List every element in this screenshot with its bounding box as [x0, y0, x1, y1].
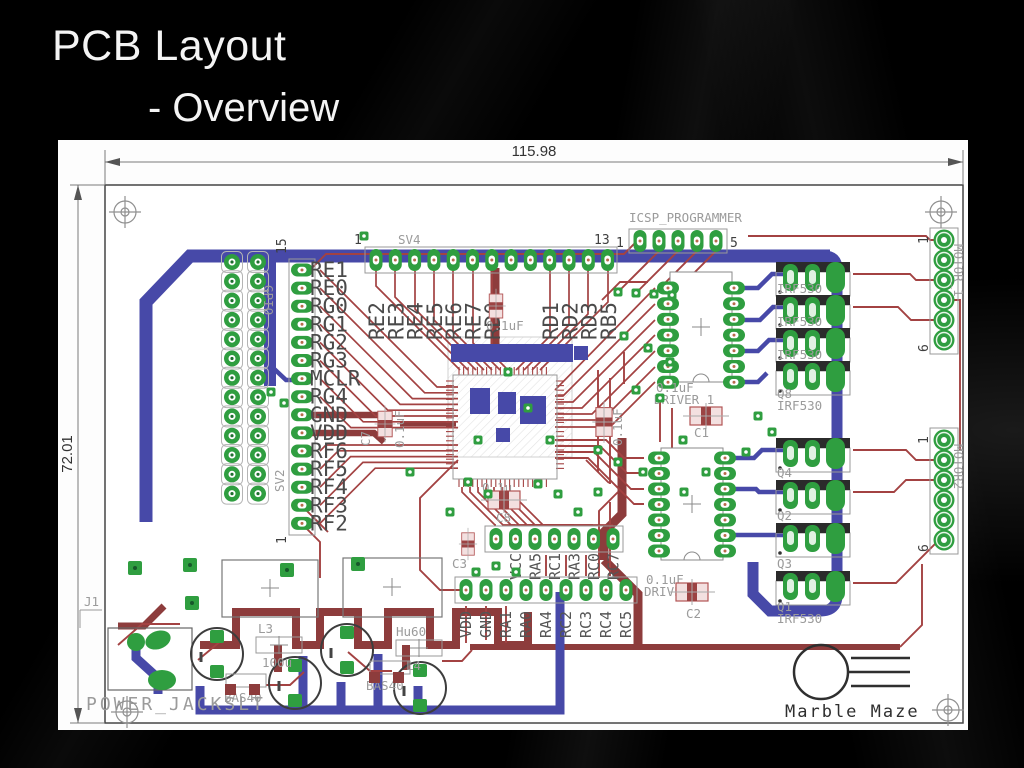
svg-text:RA0: RA0: [517, 611, 535, 638]
dimension-height-label: 72.01: [59, 435, 76, 473]
pcb-layout-image: GPIO 15 1 SV2 RE1RE0RG0RG1RG2RG3MCLRRG4G…: [58, 140, 968, 730]
slide-subtitle: - Overview: [148, 86, 339, 131]
c7-value: 0.1uF: [392, 410, 407, 448]
q4-ref: Q4: [777, 465, 792, 480]
sv4-pin-labels-left: RE2RE3RE4RE5RE6RE7RD0: [365, 302, 505, 340]
svg-text:RC5: RC5: [617, 611, 635, 638]
icsp-label: ICSP_PROGRAMMER: [629, 210, 742, 225]
motor1-pin1: 1: [917, 236, 932, 244]
q8-part: IRF530: [777, 398, 822, 413]
svg-text:RC1: RC1: [546, 553, 564, 580]
q1-part: IRF530: [777, 611, 822, 626]
l3-label: L3: [258, 621, 273, 636]
svg-text:RA4: RA4: [537, 611, 555, 638]
j1-label: J1: [84, 594, 99, 609]
c2-label: C2: [686, 606, 701, 621]
icsp-pin5: 5: [730, 236, 738, 251]
sv4-pin-labels-right: RD1RD2RD3RB5: [539, 302, 621, 340]
bank1-part-labels: IRF530IRF530IRF530: [777, 281, 822, 362]
svg-text:RC0: RC0: [585, 553, 603, 580]
c1-label: C1: [694, 425, 709, 440]
hu-label: Hu60: [396, 624, 426, 639]
svg-text:RA5: RA5: [527, 553, 545, 580]
svg-text:IRF530: IRF530: [777, 347, 822, 362]
motor2-label: MOTOR2: [951, 444, 966, 489]
sv4-pin13: 13: [594, 233, 610, 248]
top-cap-value: 0.1uF: [486, 318, 524, 333]
icsp-pin1: 1: [616, 236, 624, 251]
svg-text:RC4: RC4: [597, 611, 615, 638]
svg-text:RB5: RB5: [597, 302, 621, 340]
svg-text:RA1: RA1: [497, 611, 515, 638]
slide-title: PCB Layout: [52, 22, 286, 71]
bottom-bottom-row-labels: VDDGNDRA1RA0RA4RC2RC3RC4RC5: [457, 611, 635, 638]
bottom-top-row-labels: VCCRA5RC1RA3RC0RC7: [507, 553, 623, 580]
svg-text:RF2: RF2: [310, 511, 348, 535]
svg-text:IRF530: IRF530: [777, 314, 822, 329]
logo-text: Marble Maze: [785, 702, 920, 722]
gpio-label: GPIO: [261, 285, 276, 315]
svg-text:RC2: RC2: [557, 611, 575, 638]
svg-text:GND: GND: [477, 611, 495, 638]
slide: PCB Layout - Overview: [0, 0, 1024, 768]
sv2-pin1: 1: [275, 536, 290, 544]
q3-ref: Q3: [777, 556, 792, 571]
bottom-header-bottom-row: [455, 577, 637, 603]
svg-text:RC7: RC7: [605, 553, 623, 580]
svg-text:IRF530: IRF530: [777, 281, 822, 296]
transistor-bank-2: Q4 Q2 Q3 Q1 IRF530: [776, 438, 850, 626]
l3-value: 100u: [262, 655, 292, 670]
q2-ref: Q2: [777, 508, 792, 523]
l4-label: L4: [406, 658, 421, 673]
motor1-pin6: 6: [917, 344, 932, 352]
c3-label: C3: [452, 556, 467, 571]
motor1-label: MOTOR_1: [951, 244, 966, 297]
pcb-drawing: GPIO 15 1 SV2 RE1RE0RG0RG1RG2RG3MCLRRG4G…: [58, 140, 968, 730]
dimension-width-label: 115.98: [512, 143, 557, 160]
c7-label: C7: [358, 431, 373, 446]
svg-text:RA3: RA3: [566, 553, 584, 580]
c2-capacitor: [669, 579, 715, 605]
svg-text:VDD: VDD: [457, 611, 475, 638]
sv4-label: SV4: [398, 232, 421, 247]
motor2-pin6: 6: [917, 544, 932, 552]
sv2-pin15: 15: [275, 238, 290, 254]
svg-text:RC3: RC3: [577, 611, 595, 638]
right-cap-value: 0.1uF: [610, 408, 625, 446]
c8-label: C8: [496, 510, 511, 525]
sv2-label: SV2: [272, 469, 287, 492]
motor2-pin1: 1: [917, 436, 932, 444]
